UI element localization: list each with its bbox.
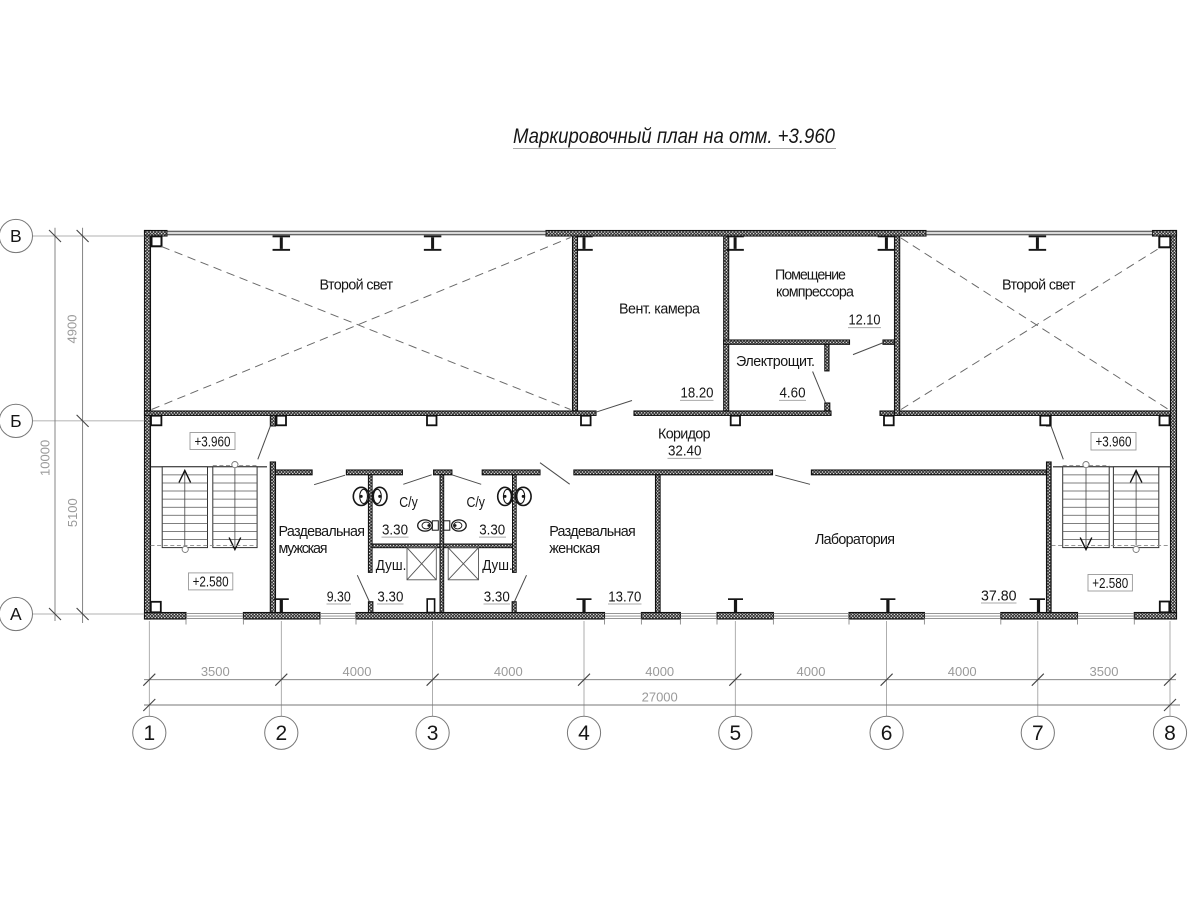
svg-text:4000: 4000: [797, 664, 826, 679]
svg-text:6: 6: [881, 722, 893, 745]
svg-text:Раздевальная: Раздевальная: [549, 524, 636, 540]
svg-text:мужская: мужская: [279, 541, 328, 557]
svg-text:Маркировочный план на отм. +3.: Маркировочный план на отм. +3.960: [513, 124, 835, 148]
svg-text:Душ.: Душ.: [482, 558, 513, 574]
svg-text:4: 4: [578, 722, 590, 745]
svg-text:+3.960: +3.960: [195, 434, 231, 450]
svg-text:37.80: 37.80: [981, 588, 1017, 604]
svg-text:Б: Б: [10, 411, 21, 431]
svg-text:Раздевальная: Раздевальная: [279, 524, 366, 540]
svg-text:Вент. камера: Вент. камера: [619, 302, 700, 318]
svg-text:женская: женская: [549, 541, 600, 557]
svg-text:Второй свет: Второй свет: [1002, 278, 1076, 294]
svg-text:1: 1: [143, 722, 155, 745]
svg-text:2: 2: [275, 722, 287, 745]
svg-text:5: 5: [729, 722, 741, 745]
svg-text:3.30: 3.30: [382, 522, 408, 538]
svg-text:4000: 4000: [494, 664, 523, 679]
svg-text:+3.960: +3.960: [1096, 435, 1132, 451]
svg-text:Помещение: Помещение: [775, 267, 846, 283]
svg-text:+2.580: +2.580: [193, 575, 229, 591]
svg-text:Электрощит.: Электрощит.: [736, 354, 815, 370]
svg-text:4900: 4900: [64, 315, 79, 344]
svg-text:+2.580: +2.580: [1092, 576, 1128, 592]
svg-text:3.30: 3.30: [377, 589, 403, 605]
svg-text:5100: 5100: [65, 498, 80, 527]
svg-text:8: 8: [1164, 722, 1176, 745]
svg-text:С/у: С/у: [466, 495, 485, 511]
svg-text:13.70: 13.70: [608, 589, 641, 605]
svg-text:4000: 4000: [343, 664, 372, 679]
svg-text:Второй свет: Второй свет: [320, 278, 394, 294]
svg-text:4000: 4000: [645, 664, 674, 679]
svg-text:Душ.: Душ.: [376, 558, 407, 574]
svg-text:Лаборатория: Лаборатория: [815, 532, 895, 548]
svg-text:3: 3: [427, 722, 439, 745]
svg-text:7: 7: [1032, 722, 1044, 745]
svg-text:12.10: 12.10: [849, 313, 881, 329]
svg-text:27000: 27000: [642, 690, 678, 705]
svg-text:18.20: 18.20: [681, 386, 714, 402]
svg-text:9.30: 9.30: [327, 589, 351, 605]
svg-text:3500: 3500: [201, 664, 230, 679]
svg-text:4.60: 4.60: [780, 386, 806, 402]
svg-text:3500: 3500: [1090, 664, 1119, 679]
svg-text:Коридор: Коридор: [658, 426, 711, 442]
svg-text:4000: 4000: [948, 664, 977, 679]
svg-text:32.40: 32.40: [668, 444, 702, 460]
svg-text:3.30: 3.30: [479, 522, 505, 538]
svg-text:В: В: [10, 226, 22, 246]
svg-text:А: А: [10, 604, 22, 624]
svg-text:компрессора: компрессора: [776, 284, 854, 300]
svg-text:10000: 10000: [38, 440, 53, 476]
svg-text:С/у: С/у: [399, 495, 418, 511]
svg-text:3.30: 3.30: [484, 589, 510, 605]
